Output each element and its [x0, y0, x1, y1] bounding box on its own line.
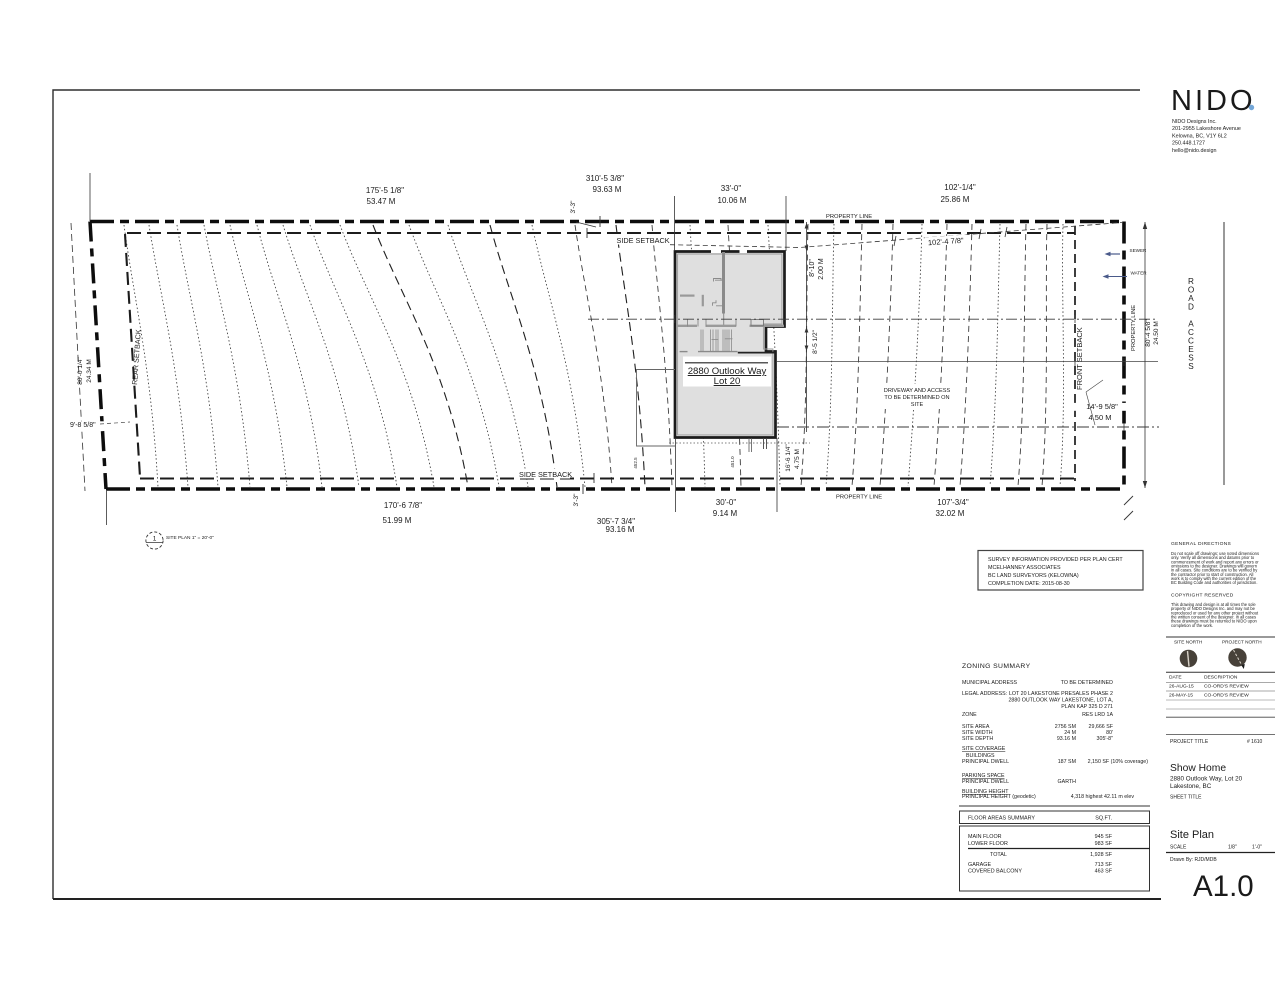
- svg-text:GENERAL DIRECTIONS: GENERAL DIRECTIONS: [1171, 541, 1232, 547]
- svg-text:10.06 M: 10.06 M: [718, 196, 747, 205]
- svg-text:TO BE DETERMINED ON: TO BE DETERMINED ON: [884, 395, 949, 401]
- svg-text:1,928 SF: 1,928 SF: [1090, 852, 1113, 858]
- svg-text:DRIVEWAY AND ACCESS: DRIVEWAY AND ACCESS: [884, 388, 951, 394]
- svg-text:175'-5 1/8": 175'-5 1/8": [366, 186, 404, 195]
- svg-text:LEGAL ADDRESS:: LEGAL ADDRESS:: [962, 691, 1007, 697]
- svg-text:PLAN KAP 325 D 271: PLAN KAP 325 D 271: [1061, 704, 1113, 710]
- svg-text:16'-6 1/4": 16'-6 1/4": [785, 444, 792, 472]
- svg-text:COPYRIGHT RESERVED: COPYRIGHT RESERVED: [1171, 593, 1234, 599]
- svg-text:26-MAY-15: 26-MAY-15: [1169, 693, 1193, 699]
- svg-text:# 1610: # 1610: [1247, 739, 1263, 745]
- svg-text:PROPERTY LINE: PROPERTY LINE: [826, 214, 872, 220]
- svg-text:4,318 highest 42.11 m elev: 4,318 highest 42.11 m elev: [1071, 794, 1135, 800]
- svg-text:MCELHANNEY ASSOCIATES: MCELHANNEY ASSOCIATES: [988, 565, 1061, 571]
- svg-text:MAIN FLOOR: MAIN FLOOR: [968, 834, 1002, 840]
- svg-text:MUNICIPAL ADDRESS: MUNICIPAL ADDRESS: [962, 680, 1018, 686]
- svg-text:DESCRIPTION: DESCRIPTION: [1204, 675, 1238, 681]
- svg-text:ZONING SUMMARY: ZONING SUMMARY: [962, 663, 1031, 670]
- svg-text:32.02 M: 32.02 M: [936, 509, 965, 518]
- svg-text:30'-0": 30'-0": [716, 498, 737, 507]
- svg-text:PRINCIPAL DWELL: PRINCIPAL DWELL: [962, 779, 1009, 785]
- svg-text:NIDO Designs Inc.: NIDO Designs Inc.: [1172, 119, 1217, 125]
- svg-text:PROJECT NORTH: PROJECT NORTH: [1222, 640, 1262, 645]
- svg-text:PROPERTY LINE: PROPERTY LINE: [1131, 305, 1137, 351]
- svg-text:PRINCIPAL DWELL: PRINCIPAL DWELL: [962, 759, 1009, 765]
- svg-text:2880 Outlook Way, Lot 20: 2880 Outlook Way, Lot 20: [1170, 776, 1243, 783]
- svg-text:2.00 M: 2.00 M: [818, 258, 825, 280]
- svg-text:LOWER FLOOR: LOWER FLOOR: [968, 841, 1008, 847]
- svg-text:TO BE DETERMINED: TO BE DETERMINED: [1061, 680, 1113, 686]
- svg-text:Drawn By: RJD/MDB: Drawn By: RJD/MDB: [1170, 857, 1217, 863]
- svg-text:CO-ORD'S REVIEW: CO-ORD'S REVIEW: [1204, 693, 1249, 699]
- svg-text:452.5: 452.5: [633, 457, 638, 469]
- svg-text:Kelowna, BC, V1Y 6L2: Kelowna, BC, V1Y 6L2: [1172, 133, 1227, 139]
- svg-text:24.50 M: 24.50 M: [1153, 321, 1160, 345]
- svg-text:945 SF: 945 SF: [1095, 834, 1113, 840]
- svg-text:FRONT SETBACK: FRONT SETBACK: [1075, 327, 1084, 390]
- svg-text:8'-5 1/2": 8'-5 1/2": [812, 329, 819, 353]
- svg-text:SIDE SETBACK: SIDE SETBACK: [617, 236, 670, 245]
- svg-text:53.47 M: 53.47 M: [367, 197, 396, 206]
- svg-text:BC Building Code and authoriti: BC Building Code and authorities of juri…: [1171, 580, 1257, 585]
- svg-text:93.16 M: 93.16 M: [606, 525, 635, 534]
- svg-text:170'-6 7/8": 170'-6 7/8": [384, 501, 422, 510]
- svg-text:93.63 M: 93.63 M: [593, 185, 622, 194]
- svg-text:24.34 M: 24.34 M: [86, 359, 93, 383]
- svg-text:463 SF: 463 SF: [1095, 869, 1113, 875]
- svg-text:SITE NORTH: SITE NORTH: [1174, 640, 1202, 645]
- svg-text:107'-3/4": 107'-3/4": [937, 498, 969, 507]
- svg-text:LOT 20 LAKESTONE PRESALES PHA: LOT 20 LAKESTONE PRESALES PHASE 2: [1009, 691, 1113, 697]
- svg-text:26-AUG-15: 26-AUG-15: [1169, 684, 1194, 690]
- svg-text:451.0: 451.0: [730, 456, 735, 468]
- svg-text:Show Home: Show Home: [1170, 763, 1226, 774]
- svg-text:4.75 M: 4.75 M: [794, 449, 801, 469]
- svg-text:SITE DEPTH: SITE DEPTH: [962, 736, 993, 742]
- svg-text:GARTH: GARTH: [1058, 779, 1077, 785]
- svg-text:SHEET TITLE: SHEET TITLE: [1170, 795, 1202, 801]
- svg-text:93.16 M: 93.16 M: [1057, 736, 1076, 742]
- svg-text:1/8": 1/8": [1228, 845, 1237, 851]
- svg-text:CO-ORD'S REVIEW: CO-ORD'S REVIEW: [1204, 684, 1249, 690]
- svg-text:completion of the work.: completion of the work.: [1171, 623, 1213, 628]
- svg-text:SURVEY INFORMATION PROVIDED PE: SURVEY INFORMATION PROVIDED PER PLAN CER…: [988, 557, 1123, 563]
- svg-text:Lakestone, BC: Lakestone, BC: [1170, 783, 1212, 790]
- svg-text:D: D: [1188, 303, 1194, 312]
- svg-text:9'-8 5/8": 9'-8 5/8": [70, 422, 96, 429]
- svg-text:9.14 M: 9.14 M: [713, 509, 738, 518]
- svg-text:8'-10": 8'-10": [809, 259, 816, 277]
- svg-text:SQ.FT.: SQ.FT.: [1095, 816, 1112, 822]
- svg-text:A1.0: A1.0: [1193, 870, 1254, 903]
- svg-text:2,150 SF (10% coverage): 2,150 SF (10% coverage): [1088, 759, 1149, 765]
- svg-text:COVERED BALCONY: COVERED BALCONY: [968, 869, 1022, 875]
- svg-text:PROJECT TITLE: PROJECT TITLE: [1170, 739, 1209, 745]
- svg-text:713 SF: 713 SF: [1095, 862, 1113, 868]
- svg-text:hello@nido.design: hello@nido.design: [1172, 148, 1216, 154]
- svg-text:25.86 M: 25.86 M: [941, 195, 970, 204]
- svg-text:1: 1: [153, 536, 157, 543]
- svg-text:S: S: [1188, 362, 1194, 371]
- svg-text:FLOOR AREAS SUMMARY: FLOOR AREAS SUMMARY: [968, 816, 1035, 822]
- svg-text:80'-0 1/4": 80'-0 1/4": [77, 357, 84, 385]
- svg-text:51.99 M: 51.99 M: [383, 516, 412, 525]
- svg-text:DATE: DATE: [1169, 675, 1182, 681]
- svg-text:COMPLETION DATE: 2015-08-30: COMPLETION DATE: 2015-08-30: [988, 581, 1070, 587]
- svg-text:2880 OUTLOOK WAY LAKESTONE, L: 2880 OUTLOOK WAY LAKESTONE, LOT A,: [1008, 698, 1113, 704]
- svg-text:3'-3": 3'-3": [573, 493, 580, 507]
- svg-text:187 SM: 187 SM: [1058, 759, 1076, 765]
- svg-text:NIDO: NIDO: [1171, 85, 1256, 117]
- svg-text:983 SF: 983 SF: [1095, 841, 1113, 847]
- svg-text:ZONE: ZONE: [962, 712, 977, 718]
- svg-text:201-2955 Lakeshore Avenue: 201-2955 Lakeshore Avenue: [1172, 126, 1241, 132]
- svg-text:PRINCIPAL HEIGHT (geodetic): PRINCIPAL HEIGHT (geodetic): [962, 794, 1036, 800]
- svg-text:1'-0": 1'-0": [1252, 845, 1262, 851]
- svg-text:PROPERTY LINE: PROPERTY LINE: [836, 495, 882, 501]
- svg-text:310'-5 3/8": 310'-5 3/8": [586, 174, 624, 183]
- svg-text:SITE COVERAGE: SITE COVERAGE: [962, 746, 1006, 752]
- svg-text:GARAGE: GARAGE: [968, 862, 991, 868]
- svg-text:102'-1/4": 102'-1/4": [944, 183, 976, 192]
- svg-text:BC LAND SURVEYORS (KELOWNA): BC LAND SURVEYORS (KELOWNA): [988, 573, 1079, 579]
- svg-text:SEWER: SEWER: [1130, 248, 1148, 253]
- svg-text:80'-4 5/8": 80'-4 5/8": [1145, 319, 1152, 347]
- svg-text:BUILDINGS: BUILDINGS: [966, 753, 995, 759]
- svg-text:SITE PLAN 1" = 20'-0": SITE PLAN 1" = 20'-0": [166, 535, 214, 541]
- svg-text:3'-3": 3'-3": [570, 200, 577, 214]
- svg-text:250.448.1727: 250.448.1727: [1172, 141, 1205, 147]
- svg-text:Lot 20: Lot 20: [714, 376, 741, 387]
- svg-text:SIDE SETBACK: SIDE SETBACK: [519, 470, 572, 479]
- svg-text:TOTAL: TOTAL: [990, 852, 1007, 858]
- svg-text:SCALE: SCALE: [1170, 845, 1187, 851]
- svg-text:305'-8": 305'-8": [1097, 736, 1114, 742]
- svg-text:33'-0": 33'-0": [721, 184, 742, 193]
- svg-text:RES LRD 1A: RES LRD 1A: [1082, 712, 1113, 718]
- svg-text:Site Plan: Site Plan: [1170, 829, 1214, 841]
- svg-text:SITE: SITE: [911, 402, 924, 408]
- svg-text:WATER: WATER: [1131, 271, 1148, 276]
